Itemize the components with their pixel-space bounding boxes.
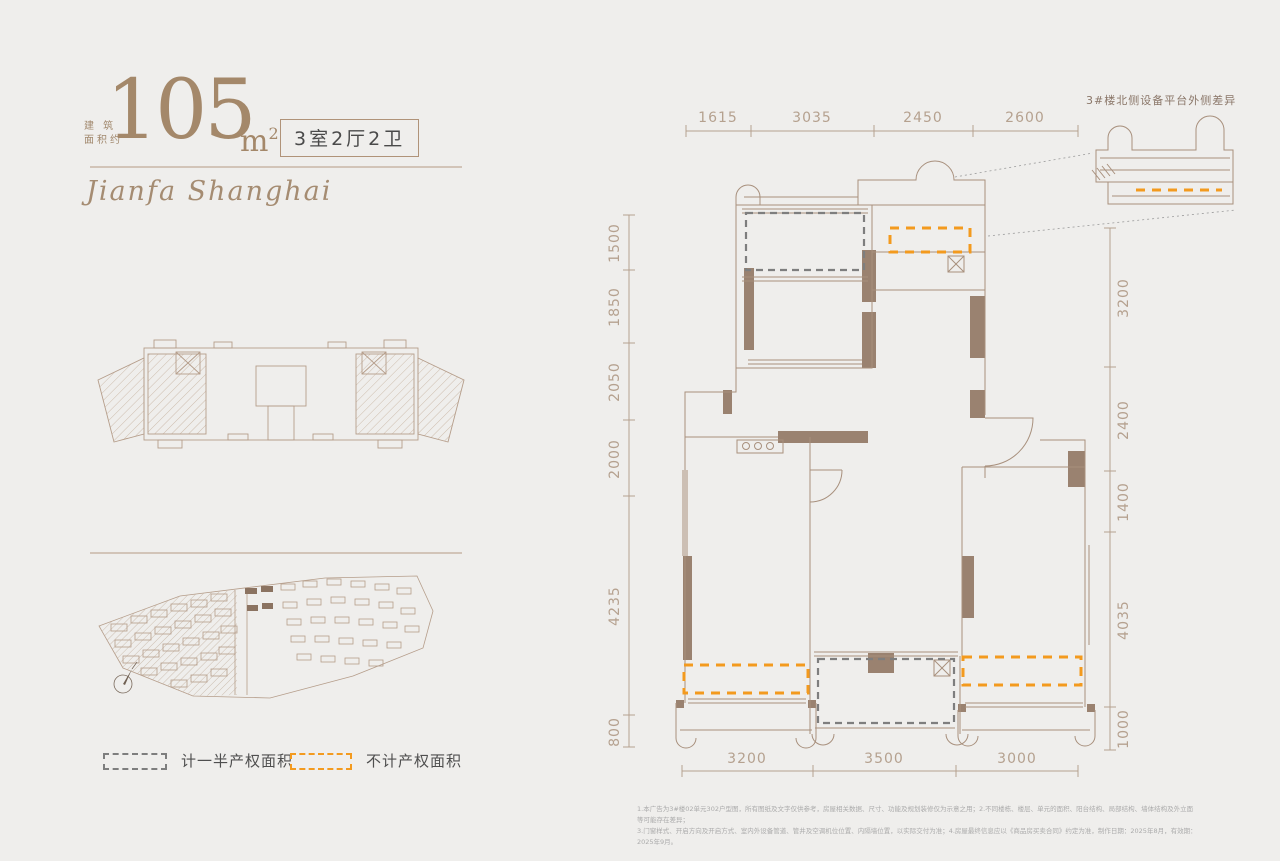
dim-bottom-1: 3500 [854,751,914,767]
dim-right-1: 2400 [1116,392,1132,448]
disclaimer-line-2: 3.门窗样式、开启方向及开启方式、室内外设备管道、管井及空调机位位置、内隔墙位置… [637,826,1197,848]
dim-left-5: 800 [607,704,623,760]
legend-half-property-swatch [103,753,167,770]
wall-fills [676,250,1095,712]
kitchen-stove-icon [737,440,783,453]
legend-non-property-swatch [290,753,352,770]
detail-inset-drawing [1092,116,1233,204]
dim-left-0: 1500 [607,215,623,271]
layout-badge: 3室2厅2卫 [280,119,419,157]
dim-top-1: 3035 [782,110,842,126]
legend-non-property-label: 不计产权面积 [366,750,462,771]
dim-left-3: 2000 [607,431,623,487]
dim-bottom-0: 3200 [717,751,777,767]
highlighted-buildings [245,586,273,611]
flue-icon [934,256,964,676]
area-unit-letter: m [240,124,268,159]
site-plan-drawing [99,576,433,698]
plan-note: 3#楼北侧设备平台外侧差异 [1086,92,1236,108]
area-unit-sup: 2 [268,124,278,143]
dim-right-4: 1000 [1116,701,1132,757]
dim-left-4: 4235 [607,578,623,634]
floorplan-page: 建 筑 面积约 105 m2 3室2厅2卫 Jianfa Shanghai 计一… [0,0,1280,861]
disclaimer-line-1: 1.本广告为3#楼02单元302户型图，所有图纸及文字仅供参考，房屋相关数据、尺… [637,804,1197,826]
area-unit: m2 [240,124,279,159]
dim-right-0: 3200 [1116,270,1132,326]
non-property-areas [684,228,1081,693]
legend-half-property-label: 计一半产权面积 [181,750,293,771]
dim-bottom-2: 3000 [987,751,1047,767]
dimension-lines [623,125,1116,777]
area-value: 105 [106,70,254,152]
dim-left-2: 2050 [607,354,623,410]
dim-right-2: 1400 [1116,474,1132,530]
dim-top-2: 2450 [893,110,953,126]
dim-right-3: 4035 [1116,592,1132,648]
dim-top-3: 2600 [995,110,1055,126]
floor-plate-drawing [98,340,464,448]
disclaimer: 1.本广告为3#楼02单元302户型图，所有图纸及文字仅供参考，房屋相关数据、尺… [637,804,1197,848]
brand-script: Jianfa Shanghai [86,176,332,207]
floor-plan-drawing [623,116,1236,777]
dim-top-0: 1615 [688,110,748,126]
dim-left-1: 1850 [607,279,623,335]
stair-core-icon [176,352,386,374]
